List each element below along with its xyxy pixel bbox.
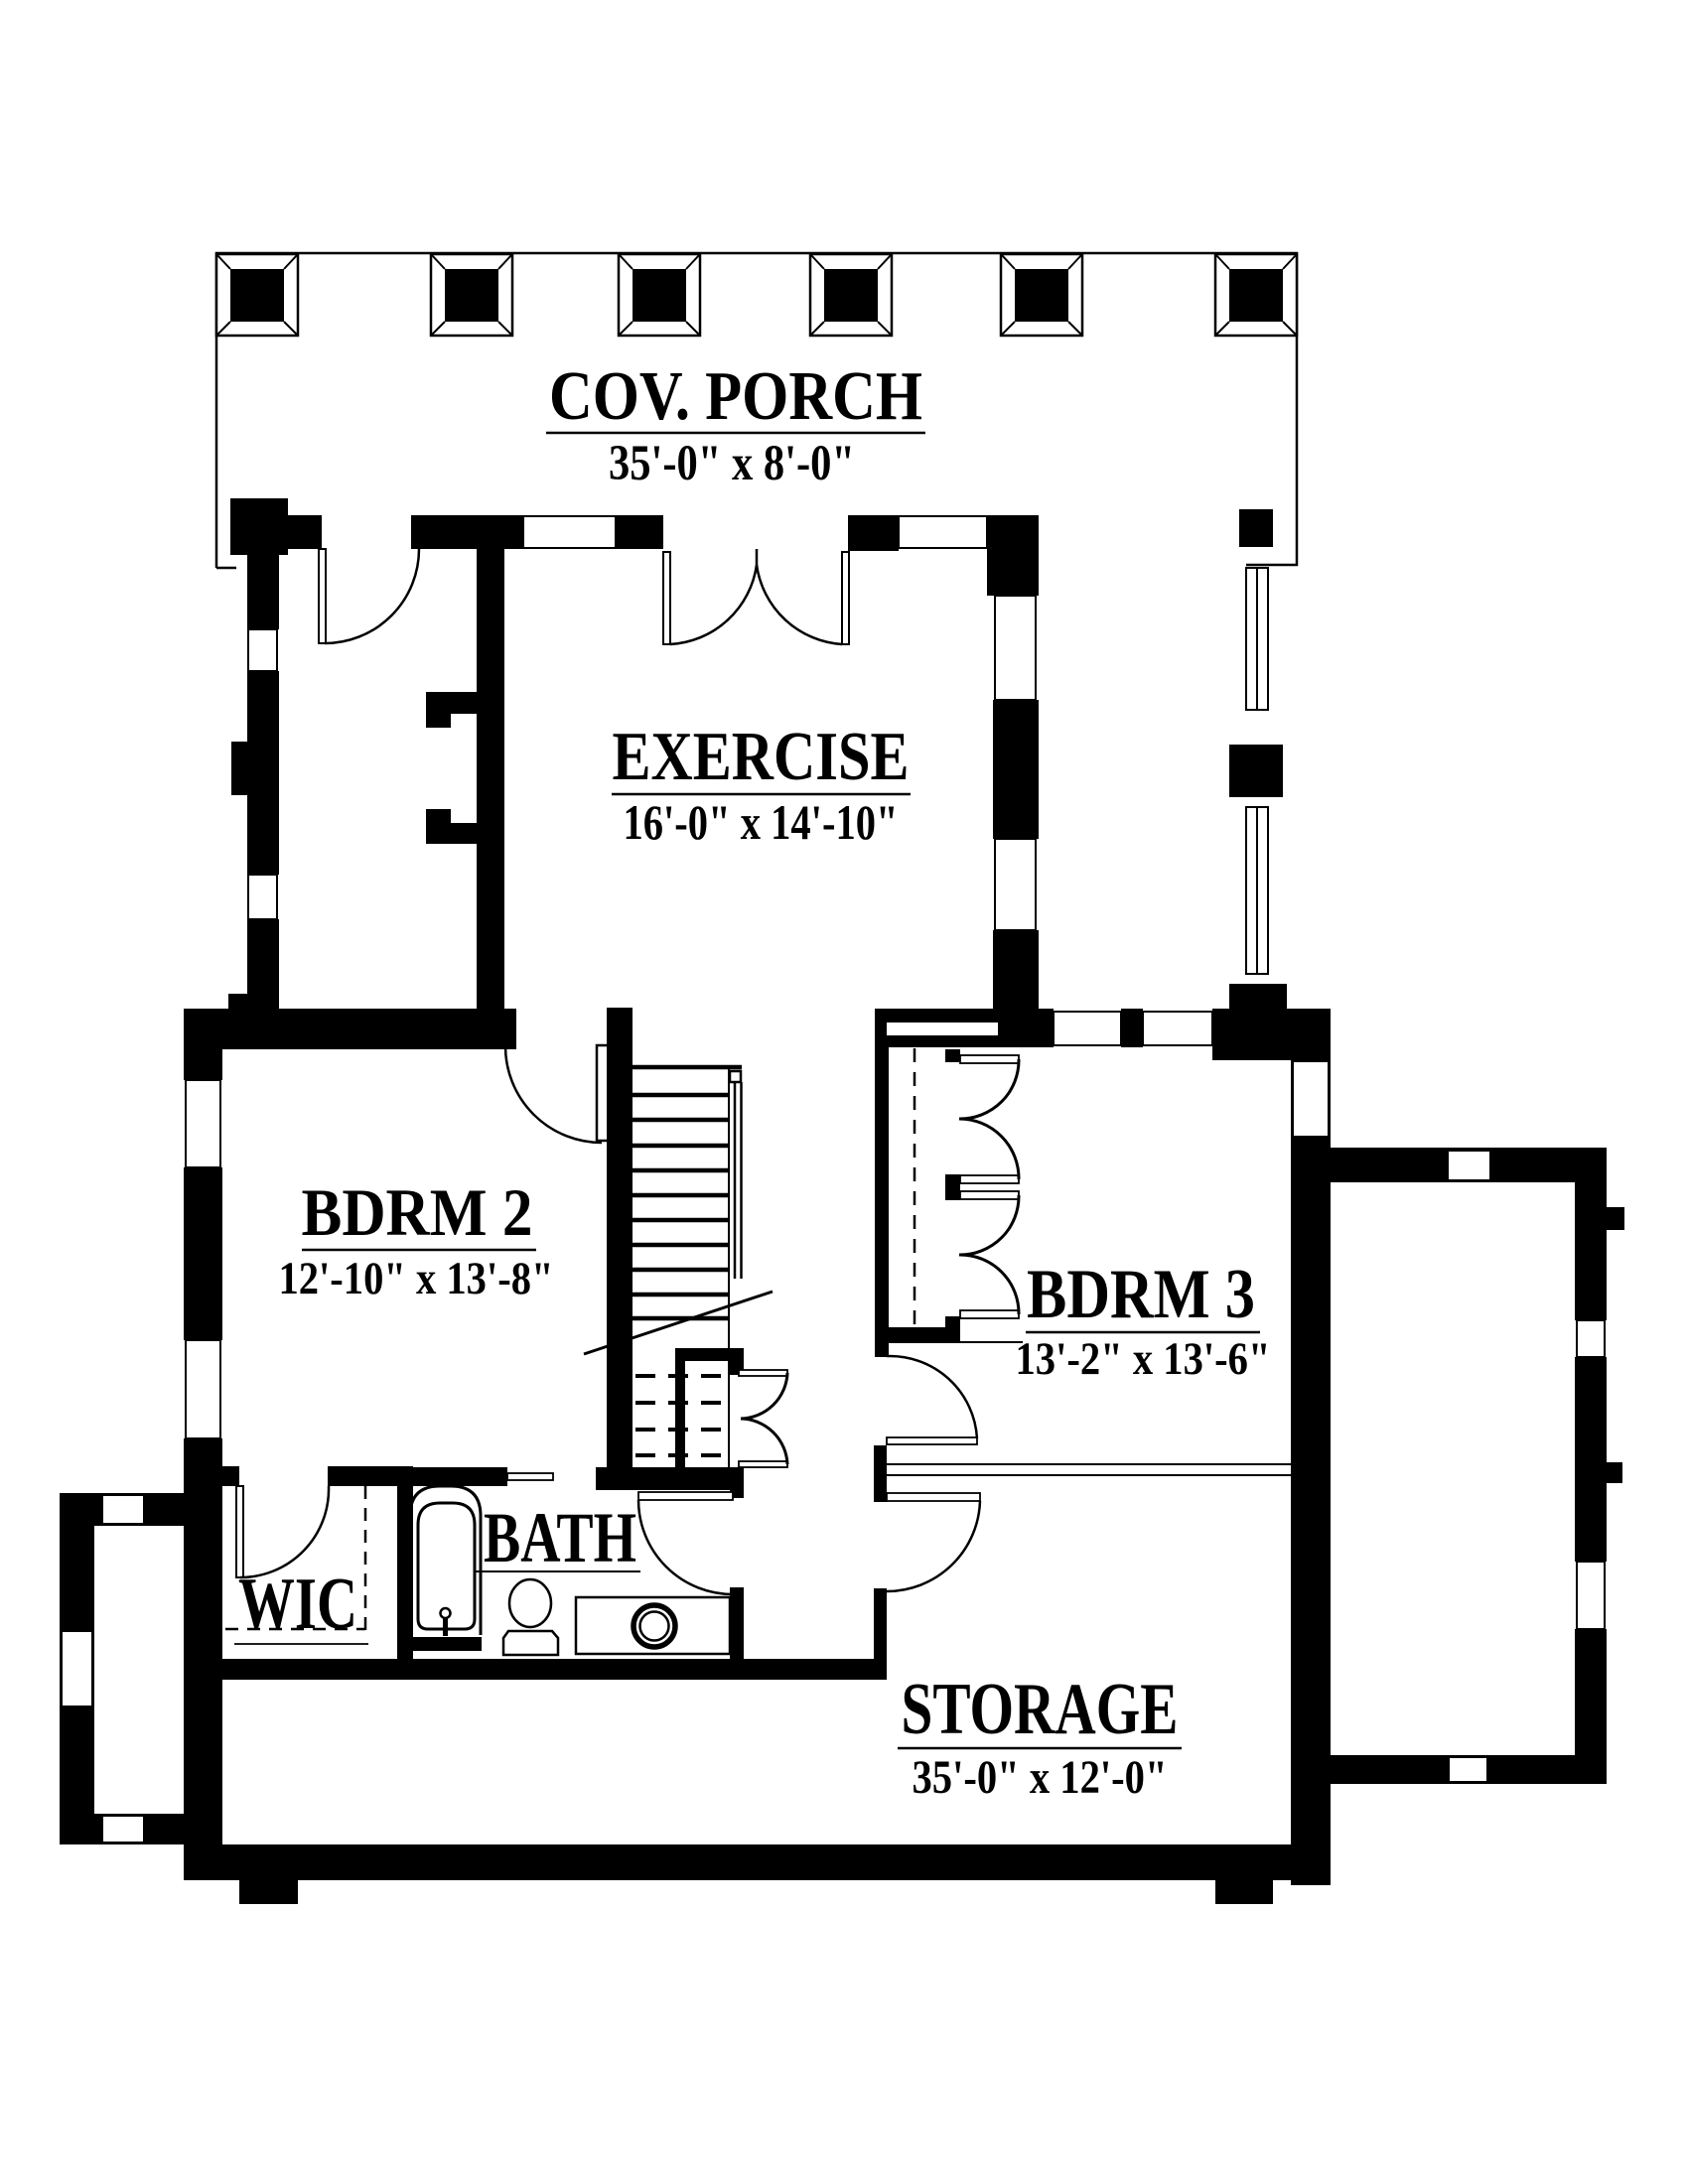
svg-text:BATH: BATH [484,1498,636,1577]
svg-text:BDRM 3: BDRM 3 [1027,1256,1255,1333]
svg-text:COV. PORCH: COV. PORCH [549,358,922,435]
svg-text:STORAGE: STORAGE [902,1669,1179,1750]
svg-text:35'-0" x 8'-0": 35'-0" x 8'-0" [609,436,855,491]
svg-text:35'-0" x 12'-0": 35'-0" x 12'-0" [913,1751,1168,1804]
svg-text:WIC: WIC [238,1564,357,1645]
svg-text:BDRM 2: BDRM 2 [302,1174,533,1250]
svg-text:16'-0" x 14'-10": 16'-0" x 14'-10" [624,794,899,850]
svg-text:13'-2" x 13'-6": 13'-2" x 13'-6" [1016,1333,1271,1385]
svg-text:EXERCISE: EXERCISE [613,719,910,795]
svg-text:12'-10" x 13'-8": 12'-10" x 13'-8" [279,1253,554,1304]
